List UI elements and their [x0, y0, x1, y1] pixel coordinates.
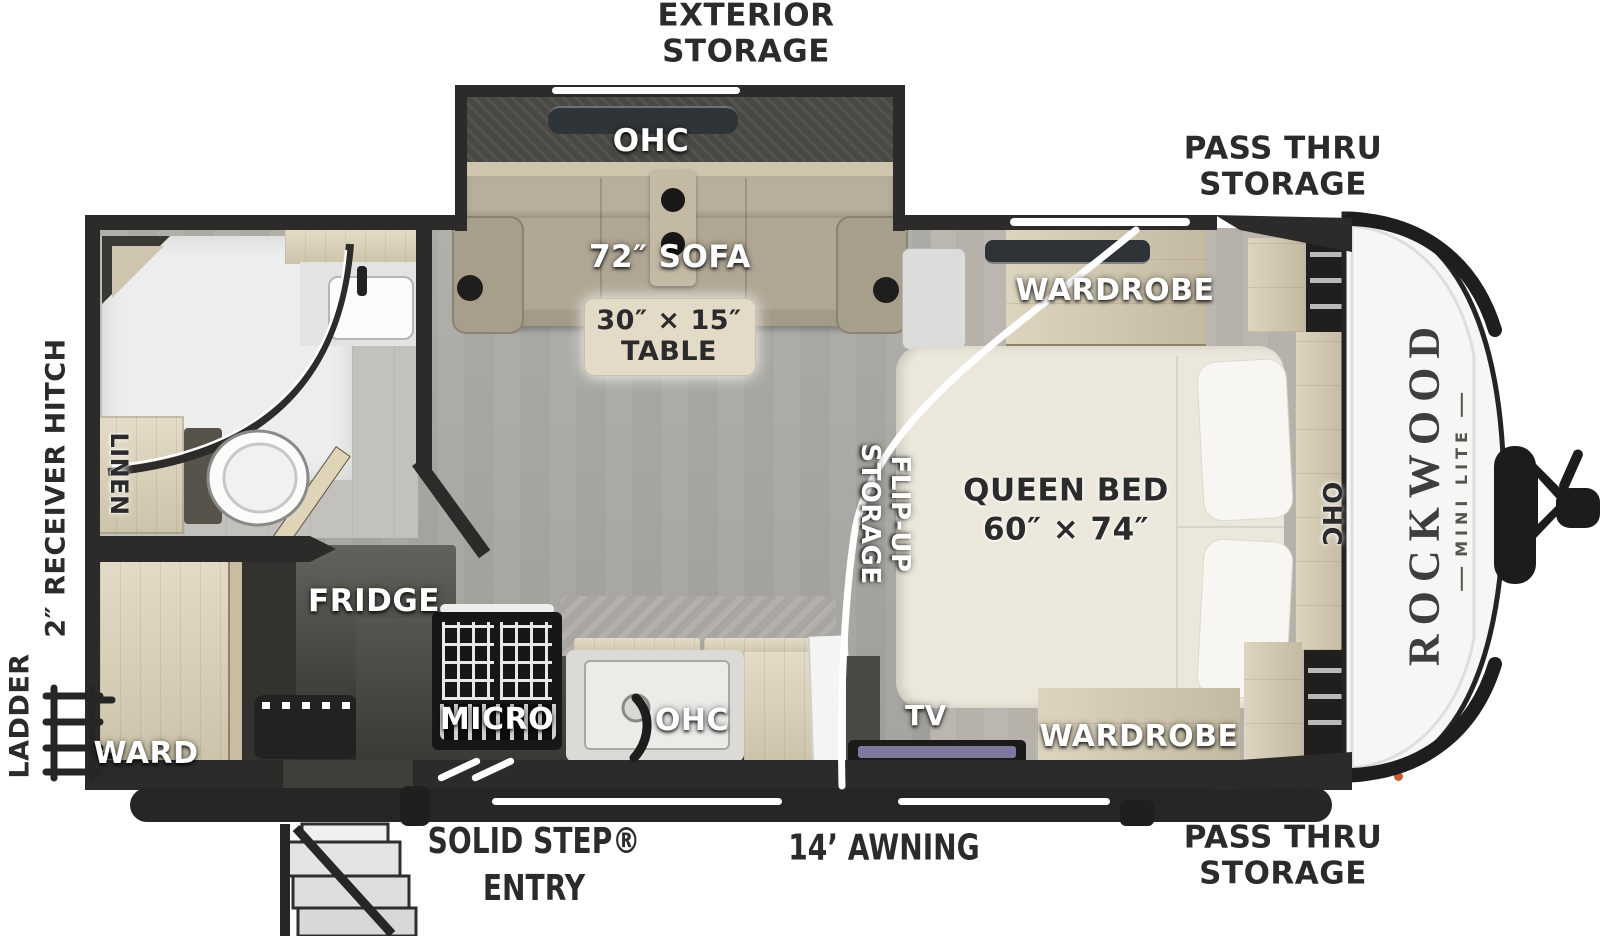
brand-series: MINI LITE [1453, 393, 1471, 591]
wall-wedge-top [1215, 215, 1352, 252]
entry-steps [280, 824, 416, 936]
wall-wedge-bottom [1215, 752, 1352, 790]
ward-label: WARD [94, 737, 199, 772]
tv-label: TV [905, 700, 947, 732]
hitch-jack-handle [1557, 448, 1584, 492]
ohc-kitchen-label: OHC [655, 704, 729, 739]
propane-cover [1494, 446, 1536, 584]
receiver-hitch-label: 2″ RECEIVER HITCH [40, 338, 71, 637]
hitch-coupler [1556, 488, 1600, 528]
table-label: 30″ × 15″ TABLE [596, 305, 741, 367]
pass-thru-storage-bottom-label: PASS THRU STORAGE [1184, 820, 1383, 891]
sofa-label: 72″ SOFA [589, 240, 751, 276]
pass-thru-storage-top-label: PASS THRU STORAGE [1184, 131, 1383, 202]
fridge-label: FRIDGE [308, 584, 440, 620]
wardrobe-top-label: WARDROBE [1016, 274, 1215, 309]
brand-series-text: MINI LITE [1453, 427, 1471, 557]
ohc-slide-label: OHC [613, 124, 690, 160]
brand-logo: ROCKWOOD [1400, 318, 1451, 666]
ladder-label: LADDER [4, 653, 35, 778]
exterior-storage-label: EXTERIOR STORAGE [657, 0, 834, 70]
ohc-bed-label: OHC [1315, 482, 1345, 546]
flip-up-storage-label: FLIP-UP STORAGE [854, 443, 914, 584]
wardrobe-bottom-label: WARDROBE [1040, 720, 1239, 755]
shower-glass-inner [112, 250, 346, 466]
shower-corner-shelf [112, 246, 164, 298]
queen-bed-label: QUEEN BED 60″ × 74″ [963, 471, 1169, 549]
floorplan-canvas: EXTERIOR STORAGE PASS THRU STORAGE PASS … [0, 0, 1600, 936]
toilet-seat [224, 444, 296, 512]
linen-label: LINEN [104, 432, 132, 515]
micro-label: MICRO [440, 703, 554, 738]
awning-label: 14’ AWNING [788, 827, 979, 868]
solid-step-entry-label: SOLID STEP® ENTRY [428, 819, 641, 913]
